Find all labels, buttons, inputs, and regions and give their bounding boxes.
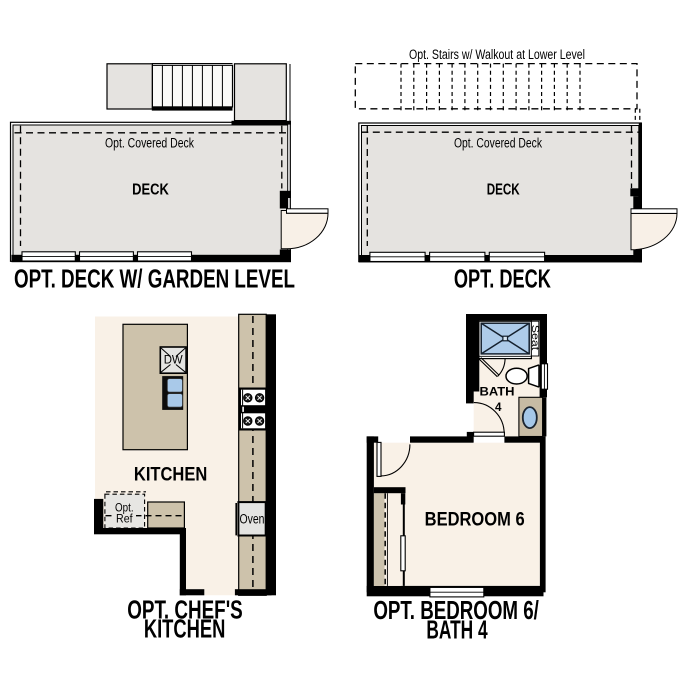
svg-text:BEDROOM 6: BEDROOM 6 xyxy=(425,510,525,531)
svg-text:Opt. Covered Deck: Opt. Covered Deck xyxy=(105,135,194,150)
svg-text:Opt. Covered Deck: Opt. Covered Deck xyxy=(454,135,542,150)
svg-text:KITCHEN: KITCHEN xyxy=(134,465,207,486)
svg-text:OPT. DECK: OPT. DECK xyxy=(454,266,551,294)
svg-text:DECK: DECK xyxy=(487,181,520,198)
svg-text:OPT. DECK W/ GARDEN LEVEL: OPT. DECK W/ GARDEN LEVEL xyxy=(14,266,295,294)
svg-text:DECK: DECK xyxy=(132,182,169,199)
svg-text:BATH: BATH xyxy=(480,384,515,398)
svg-text:4: 4 xyxy=(495,400,502,414)
svg-text:Opt. Stairs w/ Walkout at Lowe: Opt. Stairs w/ Walkout at Lower Level xyxy=(409,47,585,62)
svg-text:Oven: Oven xyxy=(240,512,265,527)
svg-text:Ref: Ref xyxy=(116,513,133,525)
svg-text:BATH 4: BATH 4 xyxy=(426,616,488,644)
svg-text:Seat: Seat xyxy=(529,325,540,351)
svg-text:KITCHEN: KITCHEN xyxy=(144,616,226,644)
svg-text:DW: DW xyxy=(164,355,183,367)
